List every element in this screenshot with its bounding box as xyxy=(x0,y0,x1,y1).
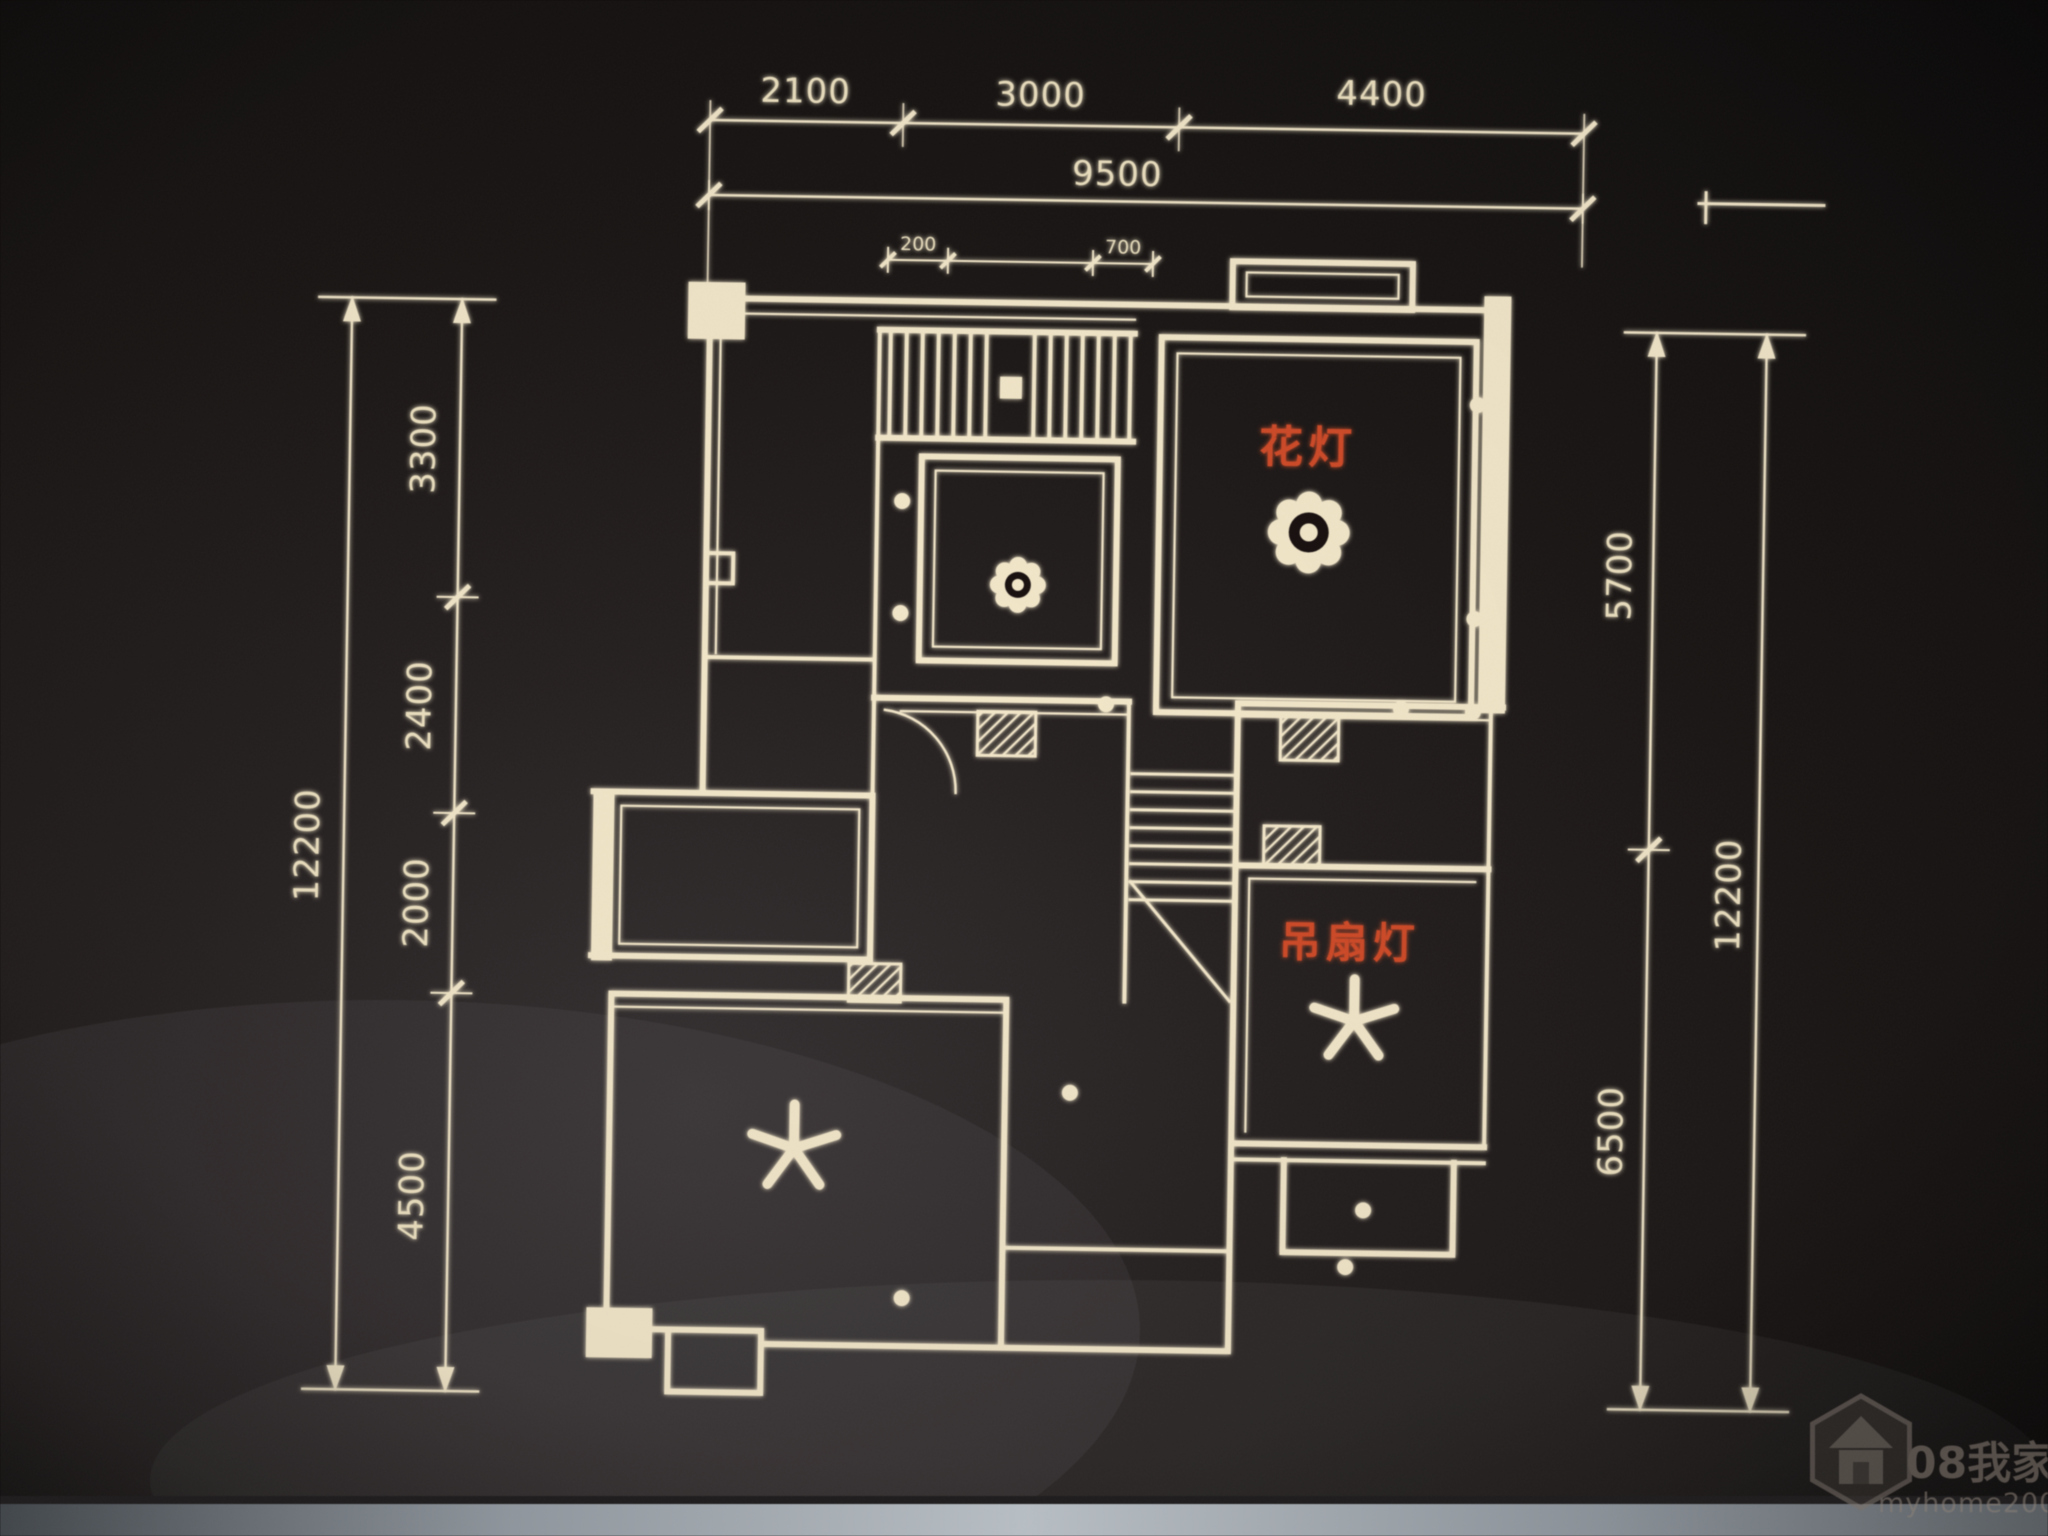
cad-plan-photo: 2100 3000 4400 9500 200 700 3300 2400 20… xyxy=(0,0,2048,1536)
screen-photo: 2100 3000 4400 9500 200 700 3300 2400 20… xyxy=(0,0,2048,1536)
photo-grain xyxy=(0,0,2048,1536)
